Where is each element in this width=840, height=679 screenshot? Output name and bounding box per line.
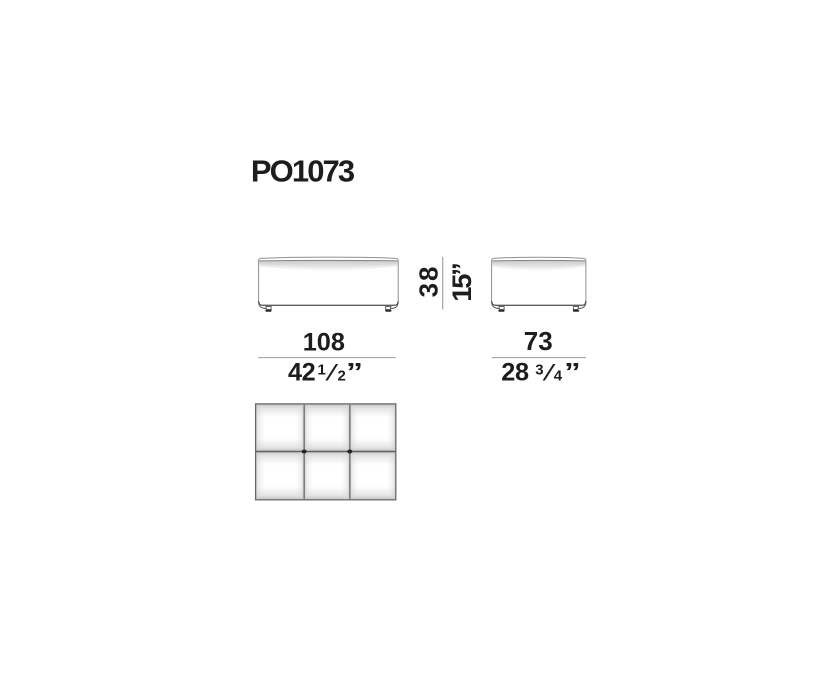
svg-text:108: 108 [303,329,345,357]
svg-text:42: 42 [288,359,316,387]
svg-text:2: 2 [338,368,346,385]
svg-text:38: 38 [413,264,443,297]
svg-text:3: 3 [535,362,543,379]
svg-text:73: 73 [524,326,553,356]
svg-text:”: ” [564,359,581,387]
svg-text:PO1073: PO1073 [251,154,355,189]
svg-text:”: ” [346,359,363,387]
svg-text:15”: 15” [446,264,477,302]
svg-text:28: 28 [501,359,529,387]
svg-text:1: 1 [318,362,326,379]
svg-text:4: 4 [554,368,563,385]
